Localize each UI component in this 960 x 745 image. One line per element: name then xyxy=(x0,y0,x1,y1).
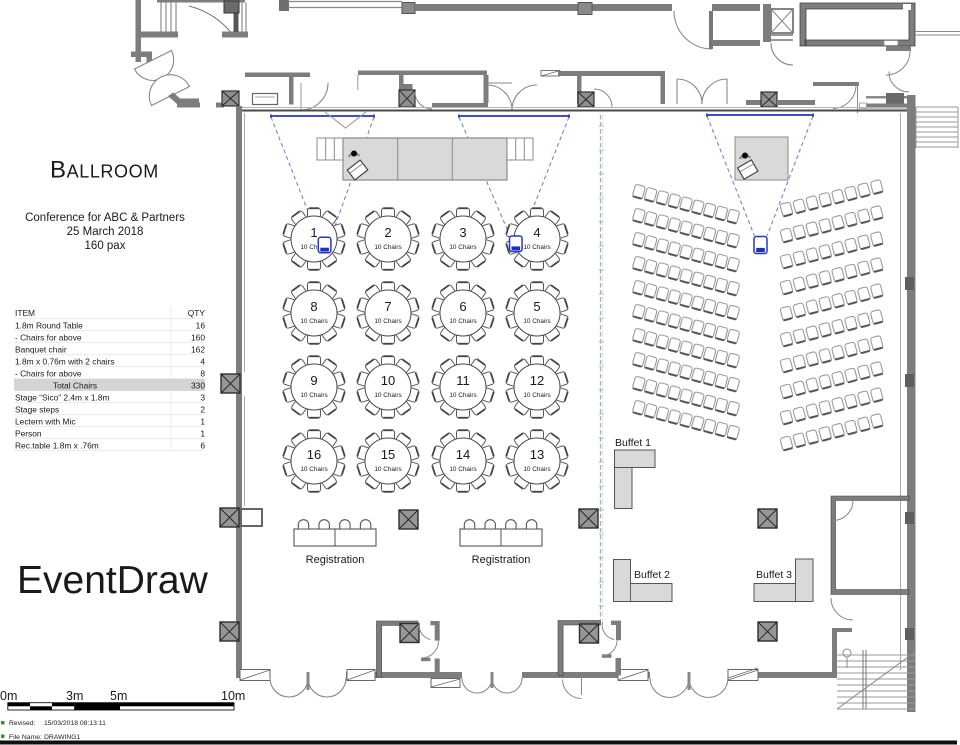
svg-text:10 Chairs: 10 Chairs xyxy=(523,392,550,399)
svg-text:3: 3 xyxy=(459,225,466,240)
svg-text:10 Chairs: 10 Chairs xyxy=(523,318,550,325)
svg-text:3: 3 xyxy=(200,392,205,402)
svg-text:2: 2 xyxy=(200,404,205,414)
svg-text:1.8m x 0.76m with 2 chairs: 1.8m x 0.76m with 2 chairs xyxy=(15,356,115,366)
svg-text:10 Chairs: 10 Chairs xyxy=(449,244,476,251)
svg-text:11: 11 xyxy=(456,373,470,388)
svg-text:13: 13 xyxy=(530,447,544,462)
svg-text:330: 330 xyxy=(191,380,205,390)
svg-text:1: 1 xyxy=(200,416,205,426)
svg-text:10 Chairs: 10 Chairs xyxy=(300,392,327,399)
svg-text:8: 8 xyxy=(200,368,205,378)
svg-text:Registration: Registration xyxy=(306,554,365,566)
svg-text:6: 6 xyxy=(200,440,205,450)
svg-text:Conference for ABC & Partners: Conference for ABC & Partners xyxy=(25,212,185,224)
svg-text:12: 12 xyxy=(530,373,544,388)
svg-text:Buffet 1: Buffet 1 xyxy=(615,437,651,449)
svg-text:Stage “Sico” 2.4m x 1.8m: Stage “Sico” 2.4m x 1.8m xyxy=(15,392,110,402)
svg-text:10 Chairs: 10 Chairs xyxy=(374,392,401,399)
svg-text:6: 6 xyxy=(459,299,466,314)
svg-text:Buffet 2: Buffet 2 xyxy=(634,569,670,581)
svg-text:15: 15 xyxy=(381,447,395,462)
svg-text:10 Chairs: 10 Chairs xyxy=(374,244,401,251)
svg-text:Stage steps: Stage steps xyxy=(15,404,59,414)
svg-text:3m: 3m xyxy=(66,689,83,703)
svg-text:Banquet chair: Banquet chair xyxy=(15,344,67,354)
svg-text:Buffet 3: Buffet 3 xyxy=(756,569,792,581)
svg-text:4: 4 xyxy=(533,225,540,240)
svg-text:2: 2 xyxy=(384,225,391,240)
svg-text:1: 1 xyxy=(310,225,317,240)
svg-text:1.8m Round Table: 1.8m Round Table xyxy=(15,320,83,330)
svg-text:10 Chairs: 10 Chairs xyxy=(300,318,327,325)
svg-text:16: 16 xyxy=(196,320,206,330)
svg-text:15/03/2018 08:13:11: 15/03/2018 08:13:11 xyxy=(44,720,106,727)
svg-text:10 Chairs: 10 Chairs xyxy=(374,318,401,325)
svg-text:Person: Person xyxy=(15,428,42,438)
svg-text:14: 14 xyxy=(456,447,470,462)
svg-text:ITEM: ITEM xyxy=(15,308,35,318)
svg-text:QTY: QTY xyxy=(188,308,206,318)
svg-text:10 Chairs: 10 Chairs xyxy=(449,392,476,399)
svg-text:DRAWING1: DRAWING1 xyxy=(44,734,81,741)
svg-text:1: 1 xyxy=(200,428,205,438)
svg-text:- Chairs for above: - Chairs for above xyxy=(15,332,82,342)
svg-text:16: 16 xyxy=(307,447,321,462)
svg-text:Rec.table 1.8m x .76m: Rec.table 1.8m x .76m xyxy=(15,440,99,450)
svg-text:10: 10 xyxy=(381,373,395,388)
svg-text:10m: 10m xyxy=(221,689,245,703)
svg-text:9: 9 xyxy=(310,373,317,388)
svg-text:Lectern with Mic: Lectern with Mic xyxy=(15,416,76,426)
svg-text:EventDraw: EventDraw xyxy=(17,559,209,602)
svg-text:0m: 0m xyxy=(0,689,17,703)
svg-text:10 Chairs: 10 Chairs xyxy=(523,244,550,251)
svg-text:BALLROOM: BALLROOM xyxy=(50,157,159,184)
svg-text:Total Chairs: Total Chairs xyxy=(53,380,97,390)
svg-text:10 Chairs: 10 Chairs xyxy=(523,466,550,473)
svg-text:5m: 5m xyxy=(110,689,127,703)
svg-text:File Name:: File Name: xyxy=(9,734,42,741)
svg-text:10 Chairs: 10 Chairs xyxy=(374,466,401,473)
svg-text:Revised:: Revised: xyxy=(9,720,36,727)
svg-text:7: 7 xyxy=(384,299,391,314)
svg-text:8: 8 xyxy=(310,299,317,314)
svg-text:Registration: Registration xyxy=(472,554,531,566)
svg-text:160 pax: 160 pax xyxy=(85,240,126,252)
svg-text:5: 5 xyxy=(533,299,540,314)
svg-text:160: 160 xyxy=(191,332,205,342)
svg-text:162: 162 xyxy=(191,344,205,354)
svg-text:10 Chairs: 10 Chairs xyxy=(449,318,476,325)
svg-text:4: 4 xyxy=(200,356,205,366)
svg-text:- Chairs for above: - Chairs for above xyxy=(15,368,82,378)
svg-text:25 March 2018: 25 March 2018 xyxy=(67,226,144,238)
svg-text:10 Chairs: 10 Chairs xyxy=(449,466,476,473)
svg-text:10 Chairs: 10 Chairs xyxy=(300,466,327,473)
